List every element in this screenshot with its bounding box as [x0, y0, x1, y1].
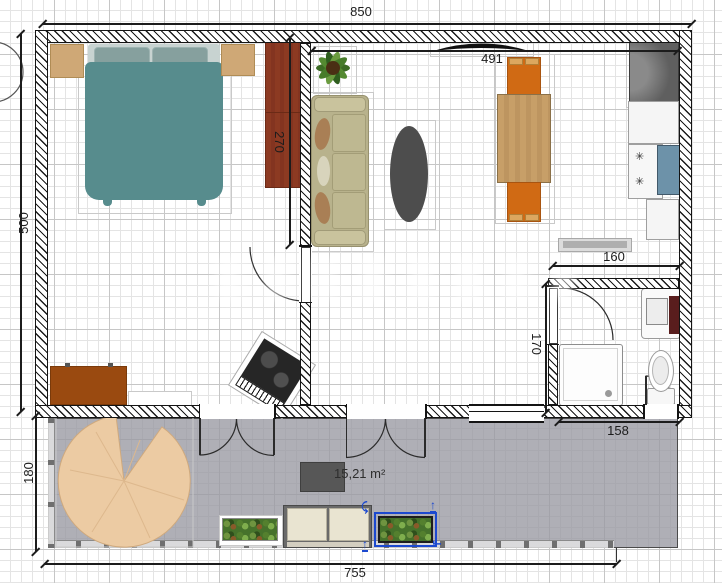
dining-table[interactable] [497, 94, 551, 183]
dim-line-170[interactable] [545, 283, 547, 413]
burner-icon: ✳ [635, 152, 644, 163]
resize-handle-icon[interactable]: ⌙ [432, 536, 442, 548]
sofa[interactable] [311, 95, 369, 247]
wall-right[interactable] [679, 30, 692, 418]
jamb [547, 344, 559, 346]
kitchen-sink[interactable] [657, 145, 680, 195]
jamb [274, 404, 276, 419]
jamb [199, 404, 201, 419]
double-bed[interactable] [85, 43, 223, 205]
rotate-handle-icon[interactable]: ⤹ [361, 501, 368, 513]
terrace-door1-arc-left [200, 418, 237, 455]
jamb [643, 404, 645, 419]
watermark [205, 258, 575, 300]
shower-drain [605, 390, 612, 397]
dim-158[interactable]: 158 [596, 424, 640, 438]
terrace-door1-leaf-right[interactable] [273, 418, 275, 455]
shower[interactable] [559, 344, 623, 406]
jamb [299, 302, 312, 304]
dim-line-160[interactable] [552, 265, 680, 267]
floor-plan-canvas: ✳ ✳ [0, 0, 722, 583]
toilet[interactable] [646, 350, 677, 406]
dim-180[interactable]: 180 [22, 451, 36, 495]
dim-491[interactable]: 491 [470, 52, 514, 66]
terrace-door2-leaf-right[interactable] [424, 418, 426, 457]
nightstand-right[interactable] [221, 44, 255, 76]
wall-top[interactable] [35, 30, 692, 43]
dim-line-850[interactable] [42, 23, 692, 25]
jamb [677, 404, 679, 419]
dim-755[interactable]: 755 [333, 566, 377, 580]
jamb [299, 245, 312, 247]
dim-270[interactable]: 270 [272, 120, 286, 164]
kitchen-counter-top[interactable] [628, 101, 679, 144]
burner-icon: ✳ [635, 177, 644, 188]
terrace-door2-leaf-left[interactable] [346, 418, 348, 457]
height-handle-icon[interactable]: ↑ [362, 538, 368, 552]
wall-bedroom-divider[interactable] [300, 43, 311, 405]
terrace-door2-opening [347, 404, 425, 419]
dim-line-270[interactable] [289, 37, 291, 245]
coffee-table[interactable] [390, 126, 428, 222]
dim-850[interactable]: 850 [339, 5, 383, 19]
terrace-area-label: 15,21 m² [334, 467, 404, 481]
terrace-door2-arc-right [386, 418, 426, 458]
terrace-bench[interactable] [283, 505, 372, 548]
desk[interactable] [50, 366, 127, 405]
bath-terrace-door-opening [644, 404, 678, 419]
dim-500[interactable]: 500 [17, 201, 31, 245]
jamb [425, 404, 427, 419]
plant-outline [313, 46, 357, 94]
nightstand-left[interactable] [50, 44, 84, 78]
desk-knob-2 [108, 363, 113, 367]
desk-knob-1 [65, 363, 70, 367]
terrace-door1-arc-right [237, 418, 275, 456]
kitchen-counter-bottom[interactable] [646, 199, 679, 240]
terrace-door2-arc-left [346, 418, 386, 458]
wardrobe[interactable] [265, 38, 303, 188]
elevation-handle-icon[interactable]: ↑ [430, 499, 436, 513]
planter-selected[interactable] [378, 516, 433, 543]
bathroom-door-arc [561, 288, 613, 340]
dim-160[interactable]: 160 [592, 250, 636, 264]
window-bottom[interactable] [469, 404, 544, 423]
terrace-door1-leaf-left[interactable] [199, 418, 201, 455]
bathroom-vanity[interactable] [641, 288, 681, 339]
jamb [346, 404, 348, 419]
dim-170[interactable]: 170 [529, 322, 543, 366]
dim-line-755[interactable] [44, 563, 617, 565]
dining-chair-bottom[interactable] [507, 182, 541, 222]
dim-ext-755 [616, 548, 617, 562]
bath-terrace-door-leaf[interactable] [645, 376, 647, 405]
terrace-door1-opening [200, 404, 274, 419]
planter-left[interactable] [222, 518, 278, 541]
wall-left[interactable] [35, 30, 48, 418]
